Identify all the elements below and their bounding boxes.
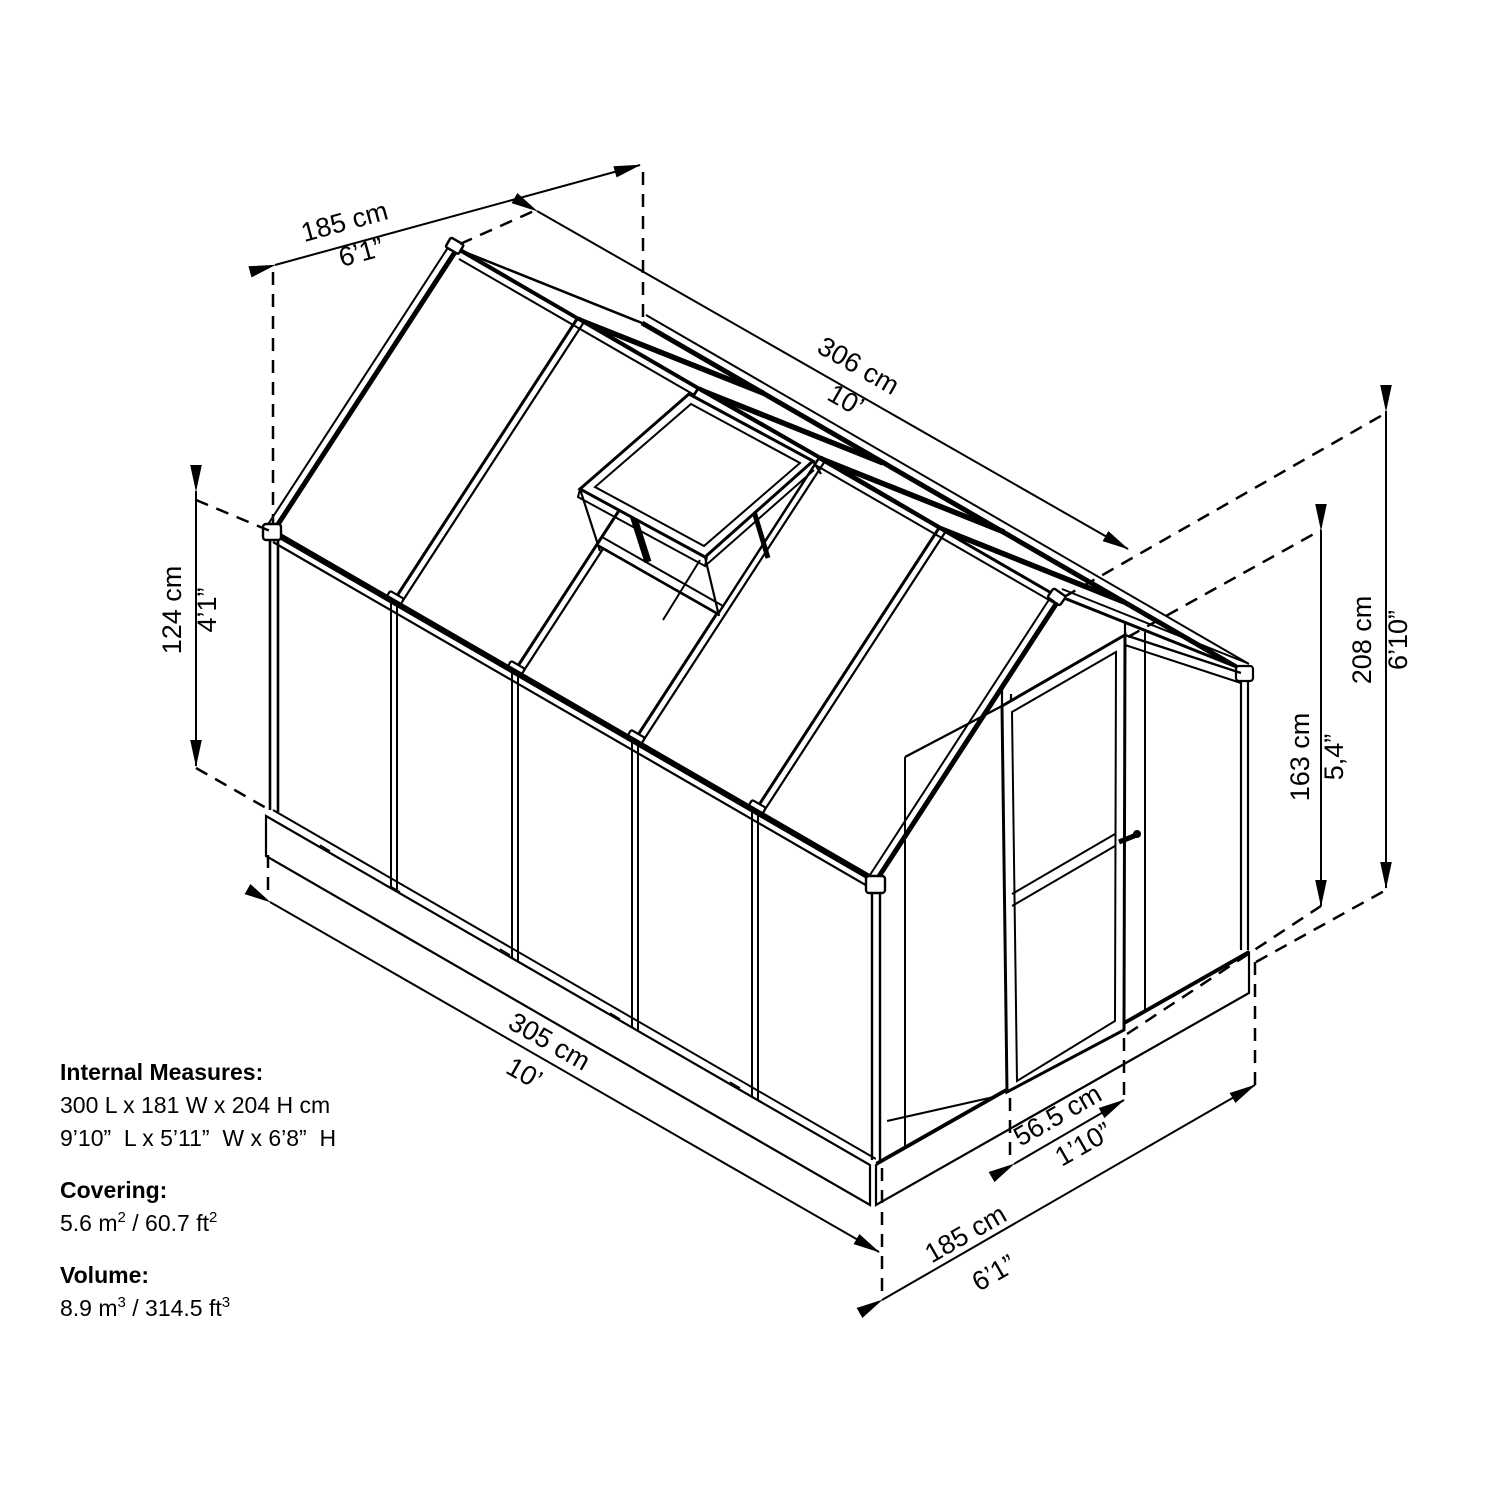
svg-text:Volume:: Volume: bbox=[60, 1262, 149, 1288]
svg-text:300 L x 181 W x 204 H cm: 300 L x 181 W x 204 H cm bbox=[60, 1092, 330, 1118]
svg-text:6’10”: 6’10” bbox=[1383, 610, 1413, 670]
svg-text:208 cm: 208 cm bbox=[1347, 596, 1377, 685]
svg-text:Internal Measures:: Internal Measures: bbox=[60, 1059, 263, 1085]
svg-text:163 cm: 163 cm bbox=[1285, 713, 1315, 802]
svg-text:5,4”: 5,4” bbox=[1319, 734, 1349, 781]
svg-text:5.6 m2 / 60.7 ft2: 5.6 m2 / 60.7 ft2 bbox=[60, 1209, 217, 1236]
svg-text:9’10” L x 5’11” W x 6’8” H: 9’10” L x 5’11” W x 6’8” H bbox=[60, 1125, 336, 1151]
svg-text:Covering:: Covering: bbox=[60, 1177, 167, 1203]
svg-text:124 cm: 124 cm bbox=[157, 566, 187, 655]
svg-text:4’1”: 4’1” bbox=[192, 587, 222, 632]
svg-text:8.9 m3 / 314.5 ft3: 8.9 m3 / 314.5 ft3 bbox=[60, 1294, 230, 1321]
